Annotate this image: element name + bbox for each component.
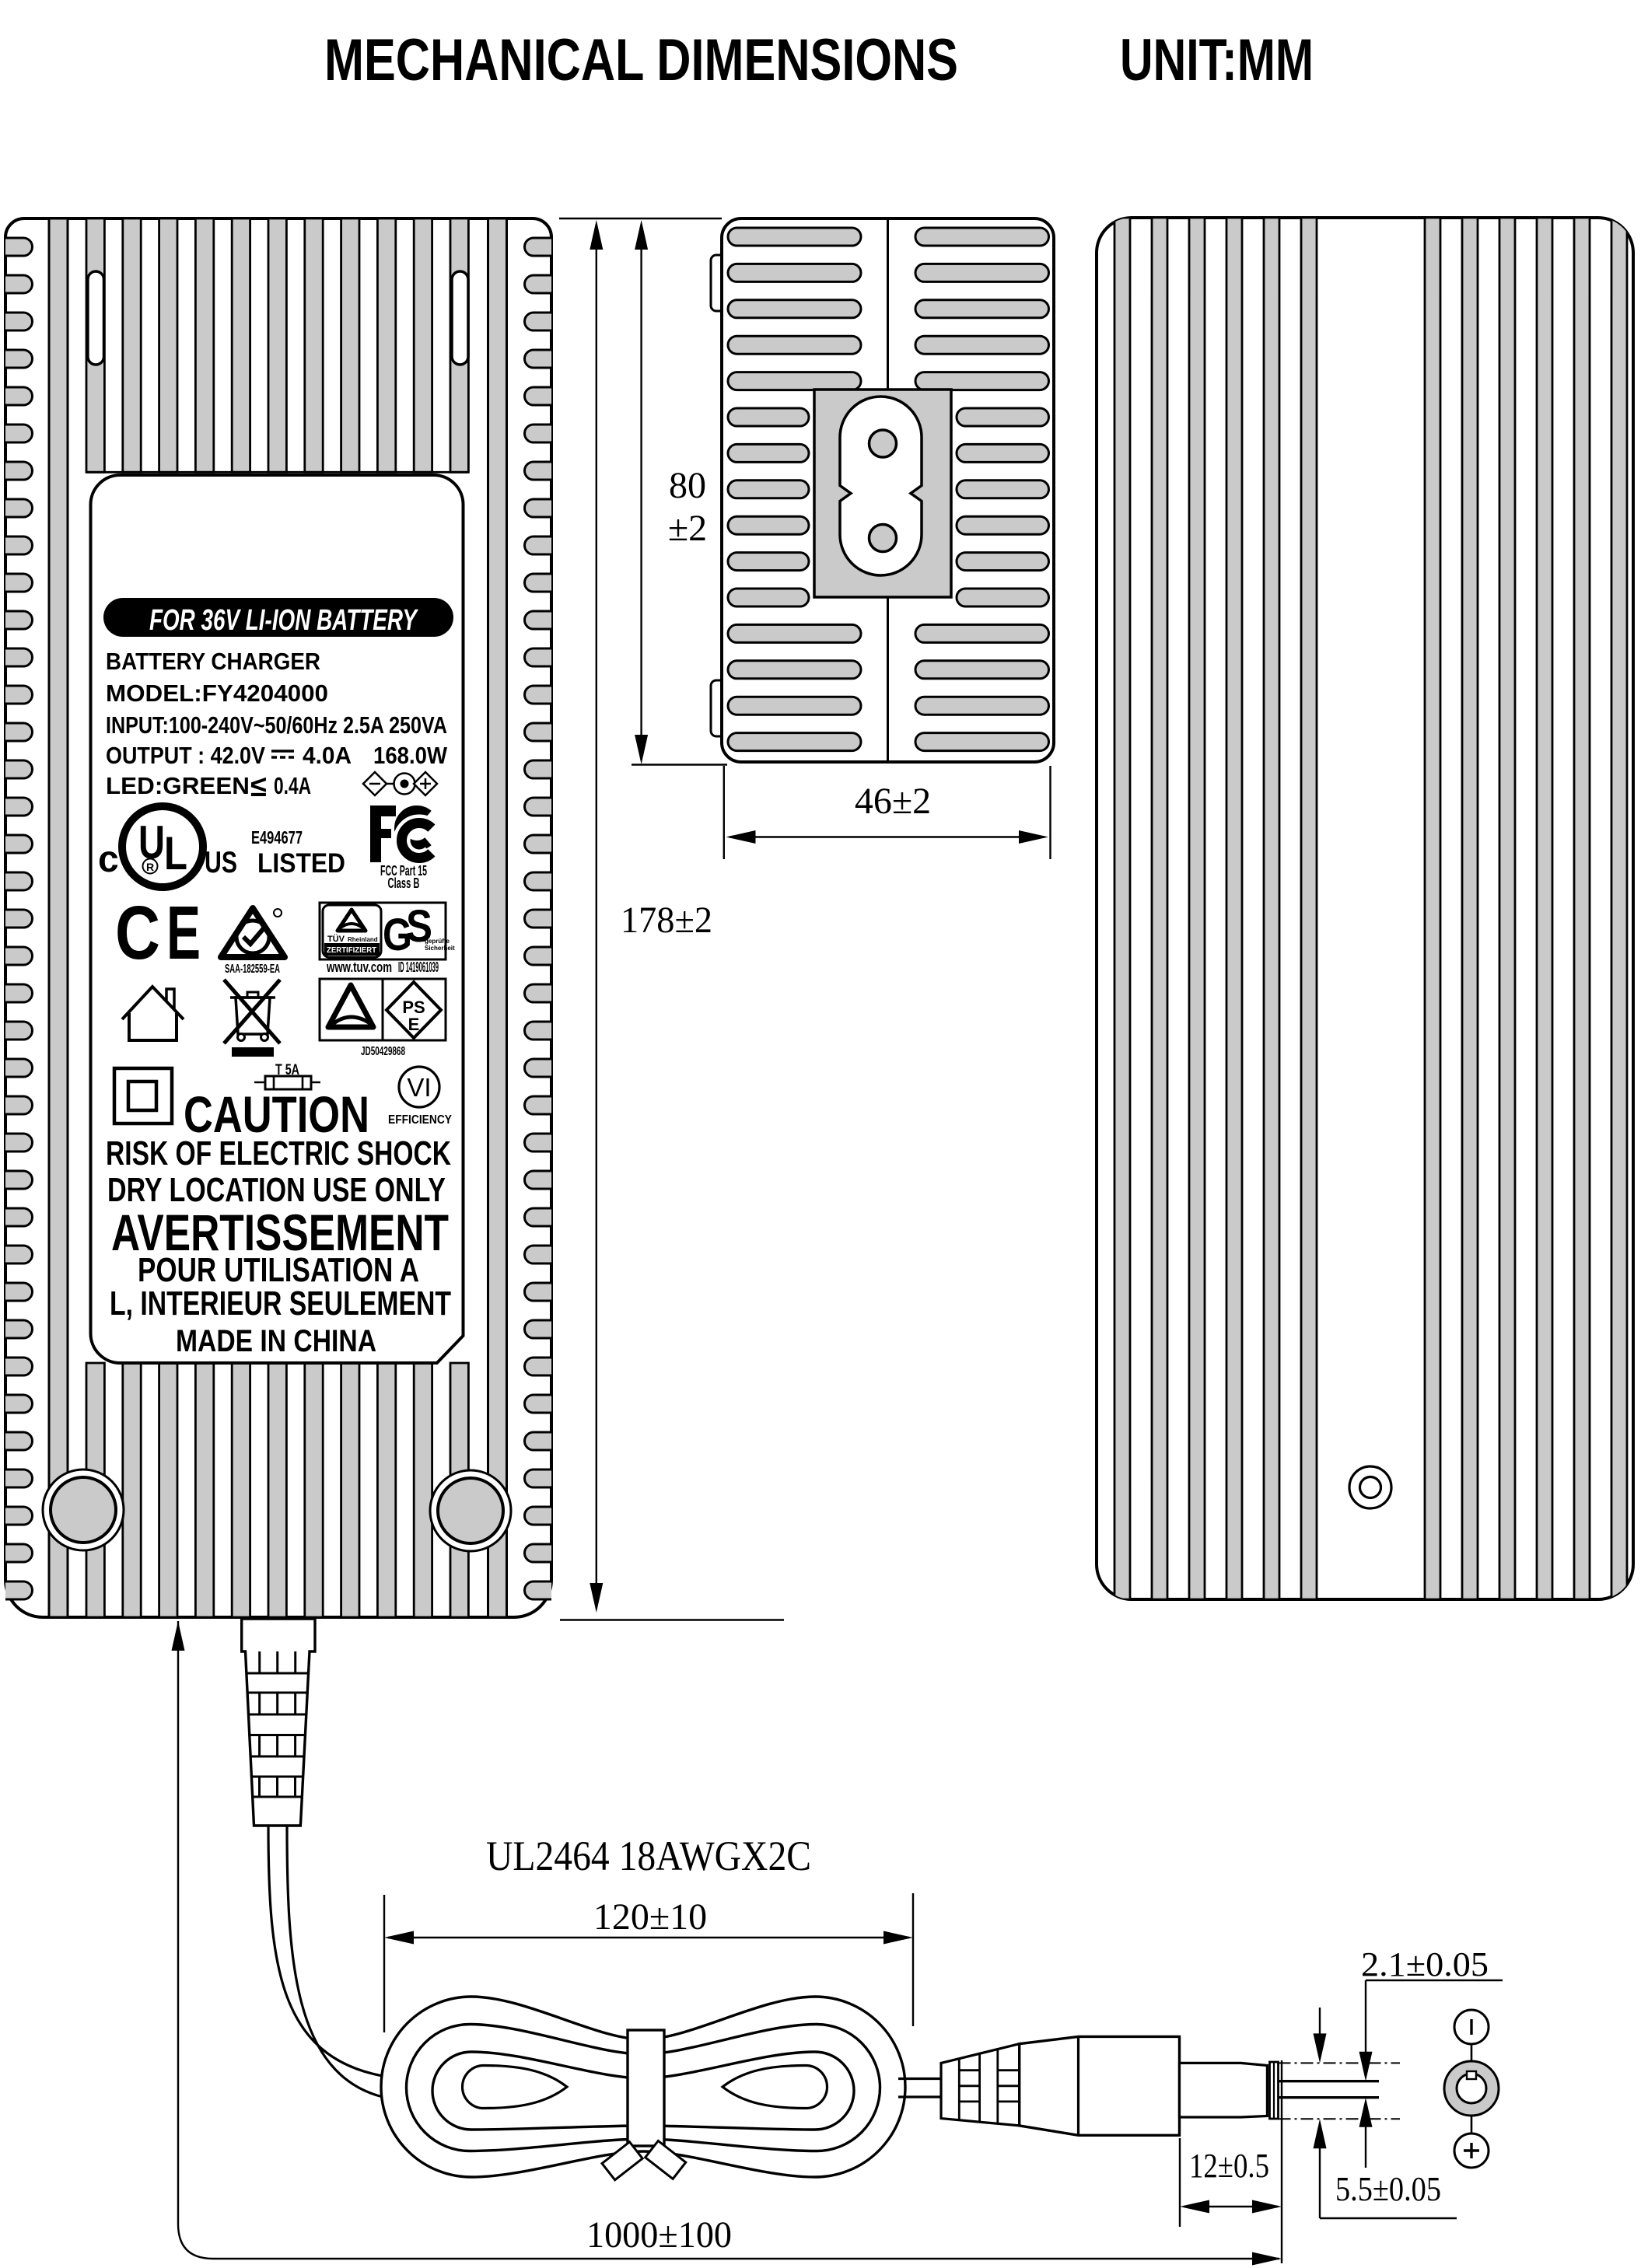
svg-text:R: R bbox=[146, 861, 154, 873]
svg-text:L, INTERIEUR SEULEMENT: L, INTERIEUR SEULEMENT bbox=[110, 1284, 451, 1323]
svg-text:168.0W: 168.0W bbox=[373, 742, 448, 769]
svg-text:TÜV: TÜV bbox=[327, 934, 345, 944]
svg-text:UNIT:MM: UNIT:MM bbox=[1120, 27, 1314, 93]
svg-text:178±2: 178±2 bbox=[621, 900, 712, 941]
svg-text:MADE IN CHINA: MADE IN CHINA bbox=[176, 1324, 376, 1358]
svg-text:ID 1419061039: ID 1419061039 bbox=[398, 959, 439, 975]
svg-text:E: E bbox=[408, 1015, 420, 1034]
svg-text:LED:GREEN: LED:GREEN bbox=[106, 772, 250, 799]
svg-text:5.5±0.05: 5.5±0.05 bbox=[1335, 2170, 1441, 2208]
svg-text:Class B: Class B bbox=[388, 875, 420, 891]
svg-text:12±0.5: 12±0.5 bbox=[1189, 2147, 1269, 2185]
svg-text:1000±100: 1000±100 bbox=[586, 2214, 732, 2256]
svg-text:INPUT:100-240V~50/60Hz 2.5A 25: INPUT:100-240V~50/60Hz 2.5A 250VA bbox=[106, 711, 447, 739]
svg-text:120±10: 120±10 bbox=[593, 1896, 707, 1938]
svg-text:C: C bbox=[115, 890, 160, 975]
svg-text:JD50429868: JD50429868 bbox=[361, 1045, 405, 1058]
svg-text:BATTERY CHARGER: BATTERY CHARGER bbox=[106, 648, 320, 675]
svg-text:±2: ±2 bbox=[668, 508, 707, 549]
svg-text:FOR 36V LI-ION BATTERY: FOR 36V LI-ION BATTERY bbox=[149, 604, 419, 637]
svg-text:c: c bbox=[98, 839, 119, 880]
svg-text:RISK OF ELECTRIC SHOCK: RISK OF ELECTRIC SHOCK bbox=[106, 1134, 451, 1172]
svg-text:geprüfte: geprüfte bbox=[425, 938, 450, 945]
svg-text:ZERTIFIZIERT: ZERTIFIZIERT bbox=[327, 946, 376, 955]
svg-text:OUTPUT : 42.0V: OUTPUT : 42.0V bbox=[106, 742, 265, 769]
svg-text:Rheinland: Rheinland bbox=[348, 936, 378, 943]
svg-text:≤: ≤ bbox=[250, 771, 267, 803]
svg-text:2.1±0.05: 2.1±0.05 bbox=[1361, 1945, 1489, 1983]
svg-text:SAA-182559-EA: SAA-182559-EA bbox=[225, 963, 280, 976]
svg-text:Sicherheit: Sicherheit bbox=[425, 945, 455, 952]
svg-text:E: E bbox=[166, 890, 201, 975]
svg-text:EFFICIENCY: EFFICIENCY bbox=[388, 1113, 452, 1127]
svg-text:46±2: 46±2 bbox=[855, 781, 931, 822]
svg-text:MECHANICAL DIMENSIONS: MECHANICAL DIMENSIONS bbox=[324, 27, 958, 93]
svg-text:L: L bbox=[164, 827, 187, 879]
svg-text:UL2464 18AWGX2C: UL2464 18AWGX2C bbox=[486, 1833, 811, 1879]
svg-text:US: US bbox=[205, 846, 237, 879]
svg-text:E494677: E494677 bbox=[251, 827, 303, 847]
svg-text:LISTED: LISTED bbox=[257, 848, 345, 879]
svg-text:MODEL:FY4204000: MODEL:FY4204000 bbox=[106, 680, 328, 707]
svg-text:0.4A: 0.4A bbox=[274, 772, 311, 799]
svg-text:4.0A: 4.0A bbox=[303, 742, 352, 769]
svg-text:80: 80 bbox=[669, 465, 706, 506]
svg-text:VI: VI bbox=[407, 1073, 431, 1102]
svg-text:POUR UTILISATION A: POUR UTILISATION A bbox=[138, 1251, 419, 1289]
svg-text:www.tuv.com: www.tuv.com bbox=[326, 959, 392, 975]
